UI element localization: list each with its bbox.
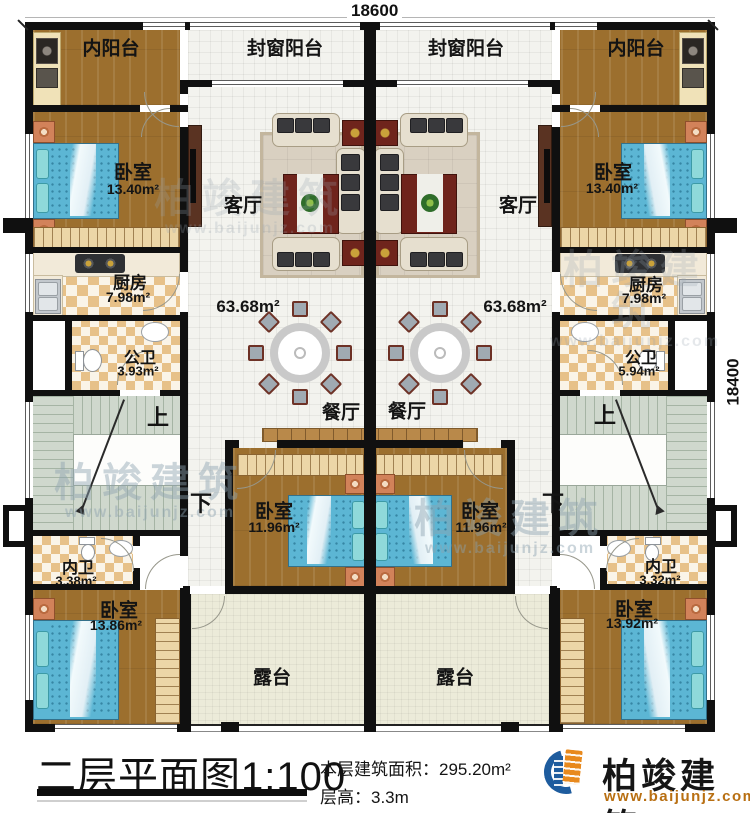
stair-landing [73,434,182,486]
parapet [376,724,549,732]
wall [160,390,188,396]
label-stairs-down-right: 下 [542,486,564,518]
label-terrace-right: 露台 [436,663,474,690]
label-sealed-balcony-left: 封窗阳台 [247,34,323,61]
window [25,402,33,498]
washbasin-icon [141,322,169,342]
sofa-cushion [295,118,312,133]
sofa-cushion [380,154,399,171]
label-bedroom-mid-left-area: 11.96m² [248,519,299,535]
label-floor-area-right: 63.68m² [483,297,546,317]
floor-plan: 柏竣建筑 www.baijunjz.com 柏竣建筑 www.baijunjz.… [0,0,750,750]
sofa-cushion [341,194,360,211]
label-public-bath-left-area: 3.93m² [117,364,158,379]
wall [225,586,364,594]
sofa-cushion [446,252,463,267]
wall [183,594,191,724]
window [563,724,685,732]
nightstand-icon [33,598,55,620]
chair-icon [432,389,448,405]
chair-icon [292,389,308,405]
wall [25,247,180,253]
building-area-text: 本层建筑面积：295.20m² [320,755,511,780]
window [555,22,597,30]
label-stairs-up-right: 上 [594,398,616,430]
label-kitchen-left-area: 7.98m² [106,289,150,305]
window [707,134,715,218]
sink-icon [679,279,705,314]
window [55,724,177,732]
label-bedroom-top-right-area: 13.40m² [586,180,638,196]
floor-plan-page: 柏竣建筑 www.baijunjz.com 柏竣建筑 www.baijunjz.… [0,0,750,813]
terrace-block [501,722,519,732]
label-private-bath-right-area: 3.32m² [639,573,680,588]
window [707,402,715,498]
wall [552,80,560,94]
sofa-cushion [380,194,399,211]
window [190,22,360,30]
wall [183,586,190,594]
floor-height-text: 层高：3.3m [320,783,409,808]
label-inner-balcony-right: 内阳台 [607,34,664,61]
toilet-icon [83,349,102,372]
parapet [191,724,364,732]
wall [25,315,180,321]
bed-icon [33,620,119,720]
label-public-bath-right-area: 5.94m² [618,364,659,379]
plant-icon [301,194,319,212]
label-floor-area-left: 63.68m² [216,297,279,317]
wall [552,127,560,272]
wall [507,440,515,590]
wall [376,80,397,87]
brand-website: www.baijunjz.com [604,788,750,805]
appliance-icon [36,68,58,88]
wall [668,318,675,390]
nightstand-icon [685,121,707,143]
label-sealed-balcony-right: 封窗阳台 [428,34,504,61]
sofa-cushion [410,252,427,267]
nightstand-icon [375,474,395,494]
wardrobe-icon [155,618,180,724]
window [707,615,715,700]
label-stairs-up-left: 上 [147,400,169,432]
wall [376,586,515,594]
sofa-cushion [341,154,360,171]
unit-right [370,22,715,732]
sofa-cushion [313,252,330,267]
window [143,22,185,30]
label-living-right: 客厅 [499,191,537,218]
nightstand-icon [375,567,395,587]
bump-out [3,505,30,547]
wall [552,530,715,536]
sofa-cushion [277,118,294,133]
stair-landing [558,434,667,486]
wall [343,80,364,87]
sofa-cushion [295,252,312,267]
wall [370,22,376,732]
label-bedroom-mid-right-area: 11.96m² [455,519,506,535]
wall [180,312,188,530]
dining-table-center [294,347,306,359]
wall [620,390,715,396]
sofa-cushion [410,118,427,133]
bump-out [712,218,737,233]
washbasin-icon [571,322,599,342]
chair-icon [336,345,352,361]
stair-treads [667,396,707,530]
wall [600,536,607,546]
chair-icon [292,301,308,317]
chair-icon [388,345,404,361]
wall [225,440,233,590]
window [25,615,33,700]
wall [225,440,239,448]
wardrobe-icon [560,227,707,248]
wall [501,440,515,448]
title-underline [37,789,307,796]
wall [180,127,188,272]
wall [549,594,557,724]
sofa-cushion [341,174,360,191]
chair-icon [432,301,448,317]
label-living-left: 客厅 [224,191,262,218]
label-stairs-down-left: 下 [190,486,212,518]
label-inner-balcony-left: 内阳台 [82,34,139,61]
wardrobe-icon [560,618,585,724]
sofa-cushion [428,252,445,267]
label-bedroom-bottom-left-area: 13.86m² [90,617,142,633]
wall [277,440,364,448]
wall [376,440,463,448]
dining-table-center [434,347,446,359]
stair-treads [33,396,73,530]
wall [65,318,72,390]
sofa-cushion [446,118,463,133]
window [25,134,33,218]
wall [560,247,715,253]
door-arc [145,554,180,589]
nightstand-icon [345,474,365,494]
wall [133,536,140,546]
chair-icon [476,345,492,361]
bed-icon [621,620,707,720]
window [397,80,528,87]
wardrobe-icon [33,227,180,248]
dimension-right: 18400 [724,358,744,405]
terrace-block [221,722,239,732]
label-private-bath-left-area: 3.38m² [55,574,96,589]
sofa-cushion [380,174,399,191]
nightstand-icon [345,567,365,587]
wall [25,390,120,396]
window [707,254,715,312]
label-dining-right: 餐厅 [388,397,426,424]
bed-icon [374,495,452,567]
title-underline-thin [37,800,307,802]
label-kitchen-right-area: 7.98m² [622,290,666,306]
unit-left [25,22,370,732]
logo-building-orange [562,749,582,785]
wall [550,586,557,594]
wall [180,80,188,94]
sofa-cushion [428,118,445,133]
label-bedroom-top-left-area: 13.40m² [107,181,159,197]
nightstand-icon [33,121,55,143]
washer-icon [682,38,704,64]
window [380,22,550,30]
label-bedroom-bottom-right-area: 13.92m² [606,615,658,631]
wall [600,105,715,112]
bump-out [710,505,737,547]
label-dining-left: 餐厅 [322,398,360,425]
bed-icon [288,495,366,567]
window [25,254,33,312]
washer-icon [36,38,58,64]
chair-icon [248,345,264,361]
wall [25,105,140,112]
window [212,80,343,87]
door-arc [560,554,595,589]
bump-out [3,218,28,233]
sink-icon [35,279,61,314]
label-terrace-left: 露台 [253,663,291,690]
sofa-cushion [277,252,294,267]
wall [25,530,188,536]
plant-icon [421,194,439,212]
brand-logo-icon [542,744,600,802]
wall [552,390,580,396]
nightstand-icon [685,598,707,620]
appliance-icon [682,68,704,88]
tv-icon [190,149,196,203]
sofa-cushion [313,118,330,133]
wall [560,315,715,321]
dimension-top: 18600 [347,1,402,21]
tv-icon [544,149,550,203]
